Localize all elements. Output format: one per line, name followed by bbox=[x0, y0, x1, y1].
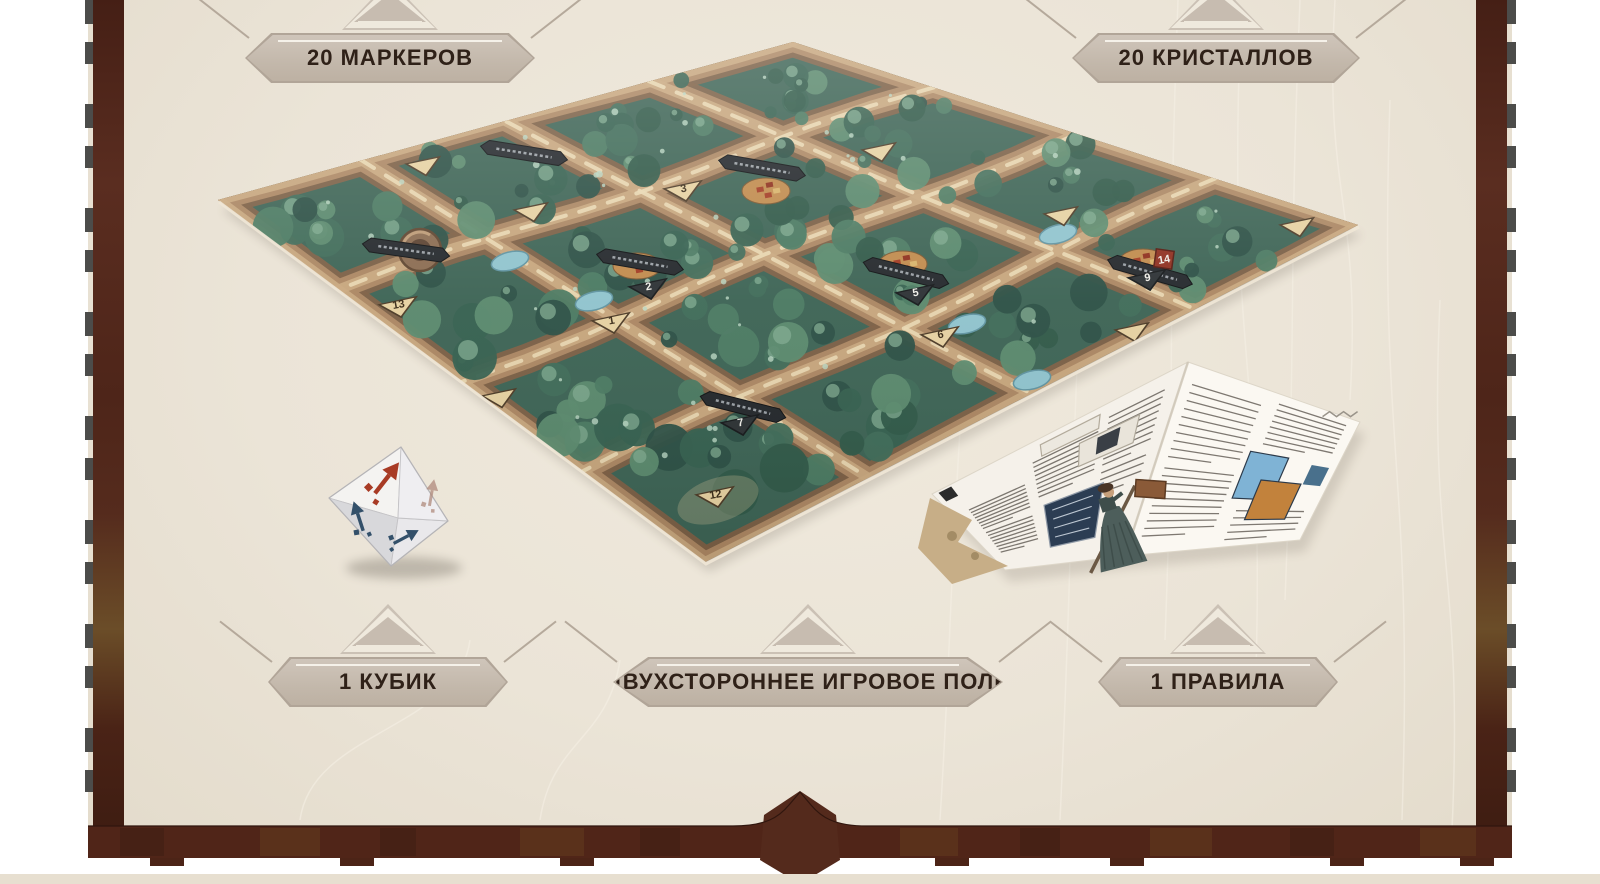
banner-plate: 20 МАРКЕРОВ bbox=[245, 33, 535, 83]
callout-label: 1 КУБИК bbox=[339, 669, 437, 695]
callout-label: 20 МАРКЕРОВ bbox=[307, 45, 473, 71]
callout-markers: 20 МАРКЕРОВ bbox=[245, 33, 535, 83]
bottom-border-ornament bbox=[0, 791, 1600, 884]
callout-label: 1 ПРАВИЛА bbox=[1151, 669, 1286, 695]
banner-plate: 1 ПРАВИЛА bbox=[1098, 657, 1338, 707]
callout-crystals: 20 КРИСТАЛЛОВ bbox=[1072, 33, 1360, 83]
banner-plate: ДВУХСТОРОННЕЕ ИГРОВОЕ ПОЛЕ bbox=[613, 657, 1003, 707]
banner-plate: 20 КРИСТАЛЛОВ bbox=[1072, 33, 1360, 83]
die-illustration bbox=[329, 447, 462, 579]
callout-board: ДВУХСТОРОННЕЕ ИГРОВОЕ ПОЛЕ bbox=[613, 657, 1003, 707]
callout-label: ДВУХСТОРОННЕЕ ИГРОВОЕ ПОЛЕ bbox=[606, 669, 1010, 695]
callout-label: 20 КРИСТАЛЛОВ bbox=[1119, 45, 1314, 71]
components-illustration: 1271132356914 bbox=[0, 0, 1600, 884]
callout-rules: 1 ПРАВИЛА bbox=[1098, 657, 1338, 707]
banner-plate: 1 КУБИК bbox=[268, 657, 508, 707]
page: 1271132356914 20 МАРКЕРОВ 20 КРИСТАЛЛОВ … bbox=[0, 0, 1600, 884]
callout-die: 1 КУБИК bbox=[268, 657, 508, 707]
